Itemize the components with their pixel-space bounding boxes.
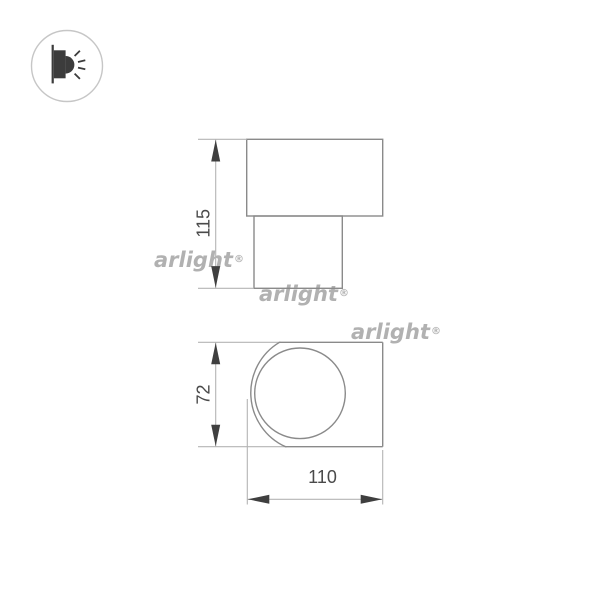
arrow-up-icon: [211, 140, 220, 162]
height-dimension-label: 115: [194, 209, 214, 238]
height-dimension-label: 72: [194, 384, 214, 404]
arrow-up-icon: [211, 343, 220, 365]
arrow-down-icon: [211, 425, 220, 447]
arrow-left-icon: [248, 495, 269, 504]
arrow-right-icon: [361, 495, 383, 504]
width-dimension-label: 110: [308, 467, 337, 487]
wall-line: [52, 45, 54, 84]
wall-light-emission-icon: [32, 31, 103, 102]
side-view-drawing: 72 110: [194, 342, 383, 504]
arrow-down-icon: [211, 266, 220, 288]
technical-drawing-page: arlight® arlight® arlight® 115: [0, 0, 600, 600]
lamp-body: [54, 50, 66, 78]
body-front-arc: [251, 342, 286, 446]
lens-circle: [255, 348, 346, 439]
lamp-head-outline: [247, 139, 383, 216]
lamp-base-outline: [254, 216, 342, 288]
dimension-drawing: 115 72 110: [0, 0, 600, 600]
front-view-drawing: 115: [194, 139, 383, 288]
